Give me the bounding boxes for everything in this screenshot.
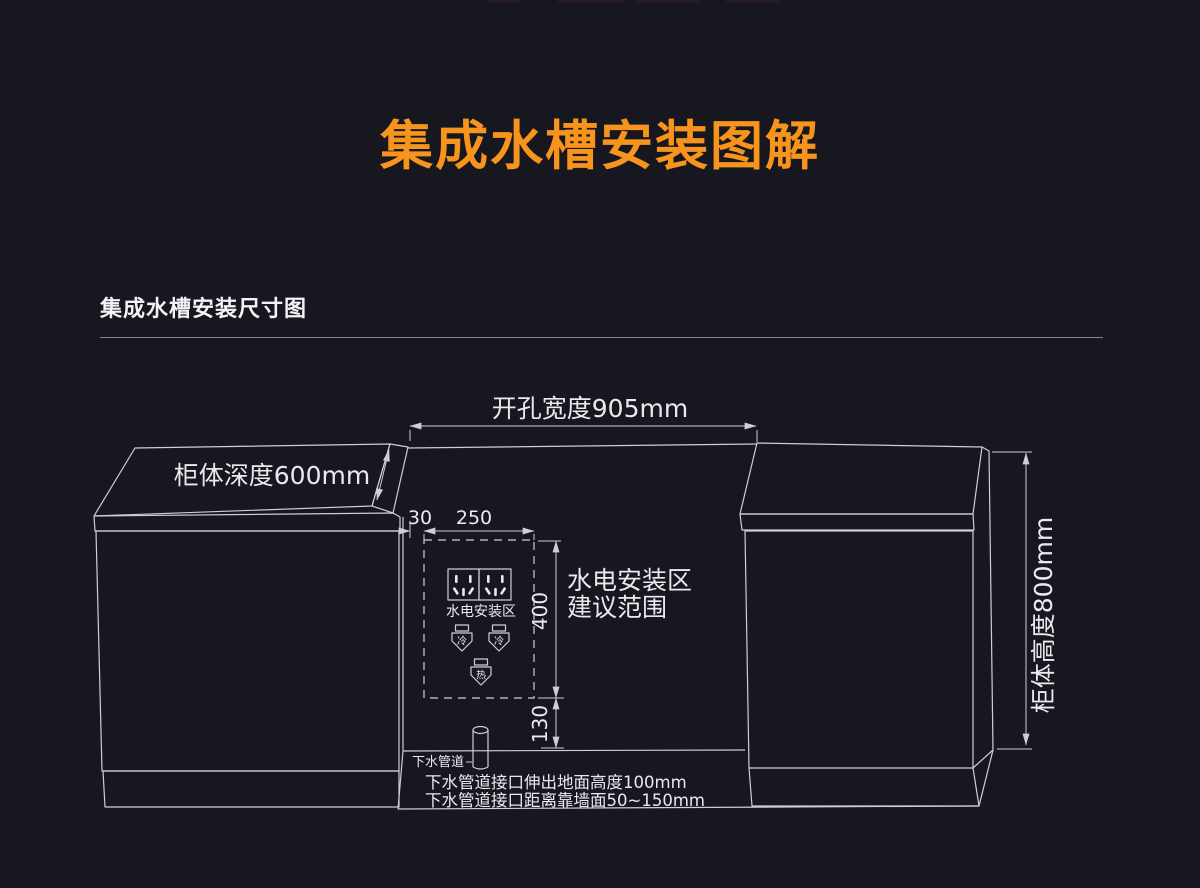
left-cabinet — [94, 444, 408, 807]
drain-notes: 下水管道接口伸出地面高度100mm 下水管道接口距离靠墙面50~150mm — [425, 773, 705, 810]
zone-offset-label: 30 — [408, 507, 432, 529]
cabinet-depth-label: 柜体深度600mm — [174, 461, 370, 490]
hot-valve-label: 热 — [476, 669, 486, 682]
zone-width-ext-lines — [424, 534, 534, 540]
right-cabinet-base-corner — [979, 750, 993, 806]
socket-area-label: 水电安装区 — [446, 604, 516, 620]
drain-pipe-label: 下水管道 — [412, 755, 464, 770]
floor-back-edge — [403, 750, 745, 751]
left-cabinet-counter-edge — [94, 513, 400, 531]
right-cabinet-front-face — [745, 531, 973, 768]
opening-width-label: 开孔宽度905mm — [492, 394, 688, 423]
right-cabinet-plinth — [749, 768, 979, 806]
drain-note-height: 下水管道接口伸出地面高度100mm — [425, 773, 687, 792]
zone-range-note: 水电安装区 建议范围 — [567, 566, 692, 622]
zone-width-label: 250 — [456, 507, 492, 529]
zone-bottom-label: 130 — [528, 705, 552, 743]
cabinet-depth-dim-line — [377, 450, 389, 500]
left-cabinet-front-face — [96, 531, 399, 771]
power-socket-icon — [448, 569, 511, 600]
right-cabinet — [740, 443, 993, 806]
cold-valve-label: 冷 — [457, 635, 467, 648]
opening-wall-floor — [398, 444, 979, 809]
zone-note-line2: 建议范围 — [567, 593, 667, 622]
dimension-cabinet-height: 柜体高度800mm — [992, 452, 1058, 749]
dimension-zone-width: 250 — [424, 507, 534, 540]
cold-valve-icon: 冷 — [489, 625, 509, 651]
dimension-opening-width: 开孔宽度905mm — [410, 394, 757, 442]
cabinet-height-label: 柜体高度800mm — [1029, 517, 1058, 713]
drain-note-distance: 下水管道接口距离靠墙面50~150mm — [425, 791, 705, 810]
opening-width-ext-lines — [410, 430, 757, 442]
dimension-cabinet-depth: 柜体深度600mm — [174, 450, 389, 500]
drain-pipe-callout: 下水管道 — [412, 755, 472, 770]
cold-valve-icon: 冷 — [452, 625, 472, 651]
right-cabinet-top — [740, 443, 982, 514]
zone-note-line1: 水电安装区 — [567, 566, 692, 595]
back-wall-top-edge — [408, 444, 757, 448]
cold-valve-label: 冷 — [494, 635, 504, 648]
zone-height-label: 400 — [528, 592, 552, 630]
dimension-drawing: 开孔宽度905mm 柜体深度600mm 30 250 400 — [0, 0, 1200, 888]
hot-valve-icon: 热 — [471, 659, 491, 685]
installation-diagram-page: 集成水槽安装图解 集成水槽安装尺寸图 — [0, 0, 1200, 888]
drain-pipe — [473, 727, 488, 770]
left-cabinet-plinth — [103, 771, 399, 807]
right-cabinet-counter-edge — [740, 514, 974, 530]
left-cabinet-top-end-fold — [372, 444, 408, 513]
dimension-zone-bottom-gap: 130 — [528, 698, 564, 748]
